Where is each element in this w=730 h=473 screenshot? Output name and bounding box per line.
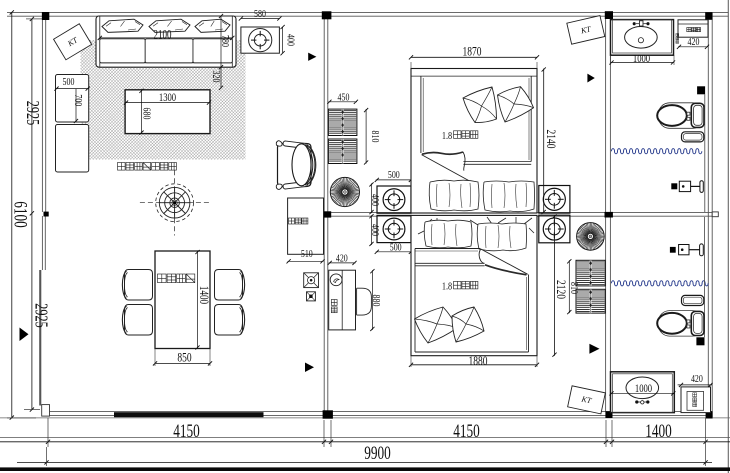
svg-text:400: 400	[284, 34, 297, 46]
svg-text:810: 810	[568, 282, 581, 294]
svg-text:780: 780	[219, 35, 232, 47]
svg-text:500: 500	[388, 169, 400, 182]
svg-text:500: 500	[390, 241, 402, 254]
svg-text:4150: 4150	[173, 419, 200, 441]
svg-text:420: 420	[688, 36, 700, 49]
svg-text:810: 810	[369, 131, 382, 143]
svg-text:1870: 1870	[463, 45, 482, 59]
svg-text:320: 320	[210, 71, 223, 83]
svg-text:450: 450	[338, 91, 350, 104]
svg-text:580: 580	[254, 8, 266, 21]
svg-text:1000: 1000	[635, 383, 652, 396]
svg-text:400: 400	[368, 224, 381, 236]
svg-text:1880: 1880	[469, 355, 488, 369]
svg-text:2100: 2100	[154, 28, 172, 42]
svg-text:2120: 2120	[554, 280, 568, 299]
svg-text:510: 510	[301, 248, 313, 261]
svg-text:2925: 2925	[22, 101, 41, 125]
svg-text:1300: 1300	[159, 92, 176, 105]
svg-text:880: 880	[370, 295, 383, 307]
svg-text:680: 680	[140, 108, 153, 120]
svg-text:700: 700	[72, 94, 85, 106]
svg-text:500: 500	[63, 76, 75, 89]
svg-text:6100: 6100	[10, 201, 32, 228]
svg-text:2925: 2925	[31, 303, 50, 327]
svg-text:850: 850	[177, 351, 191, 365]
svg-text:1400: 1400	[645, 419, 672, 441]
svg-text:9900: 9900	[364, 441, 391, 463]
svg-text:420: 420	[336, 252, 348, 265]
svg-text:400: 400	[368, 194, 381, 206]
svg-text:1.8: 1.8	[442, 130, 452, 142]
svg-text:1.8: 1.8	[442, 280, 452, 292]
svg-text:1000: 1000	[633, 53, 650, 66]
svg-text:1400: 1400	[197, 286, 211, 305]
svg-text:420: 420	[691, 373, 703, 386]
svg-text:4150: 4150	[453, 419, 480, 441]
svg-text:2140: 2140	[544, 130, 558, 149]
